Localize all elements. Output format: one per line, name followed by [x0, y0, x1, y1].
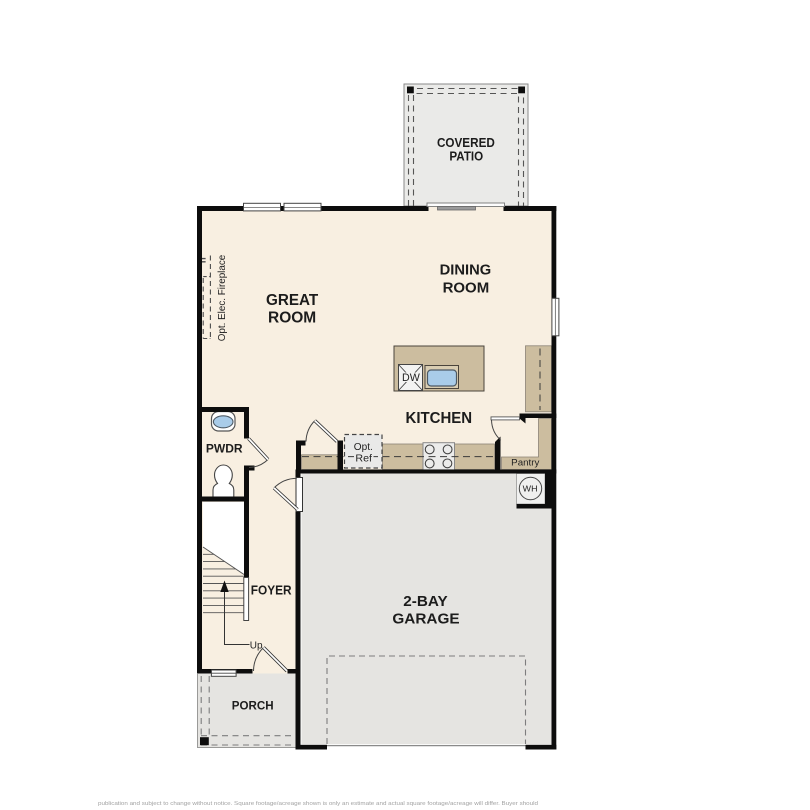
svg-text:2-BAY: 2-BAY: [403, 593, 447, 610]
svg-text:PORCH: PORCH: [232, 699, 274, 713]
svg-text:FOYER: FOYER: [251, 583, 292, 598]
svg-text:PATIO: PATIO: [449, 149, 483, 164]
svg-text:GARAGE: GARAGE: [392, 611, 459, 628]
svg-text:Opt. Elec. Fireplace: Opt. Elec. Fireplace: [217, 254, 228, 341]
svg-text:publication and subject to cha: publication and subject to change withou…: [98, 801, 538, 807]
svg-text:WH: WH: [523, 483, 538, 493]
svg-text:Pantry: Pantry: [511, 458, 540, 468]
svg-text:GREAT: GREAT: [266, 292, 319, 309]
svg-text:KITCHEN: KITCHEN: [406, 410, 473, 427]
svg-text:DINING: DINING: [440, 262, 492, 279]
svg-text:DW: DW: [402, 372, 420, 384]
svg-text:Opt.: Opt.: [354, 442, 373, 453]
svg-text:ROOM: ROOM: [268, 310, 316, 327]
svg-text:PWDR: PWDR: [206, 442, 243, 456]
svg-text:ROOM: ROOM: [443, 279, 490, 296]
svg-text:Ref: Ref: [355, 453, 372, 464]
